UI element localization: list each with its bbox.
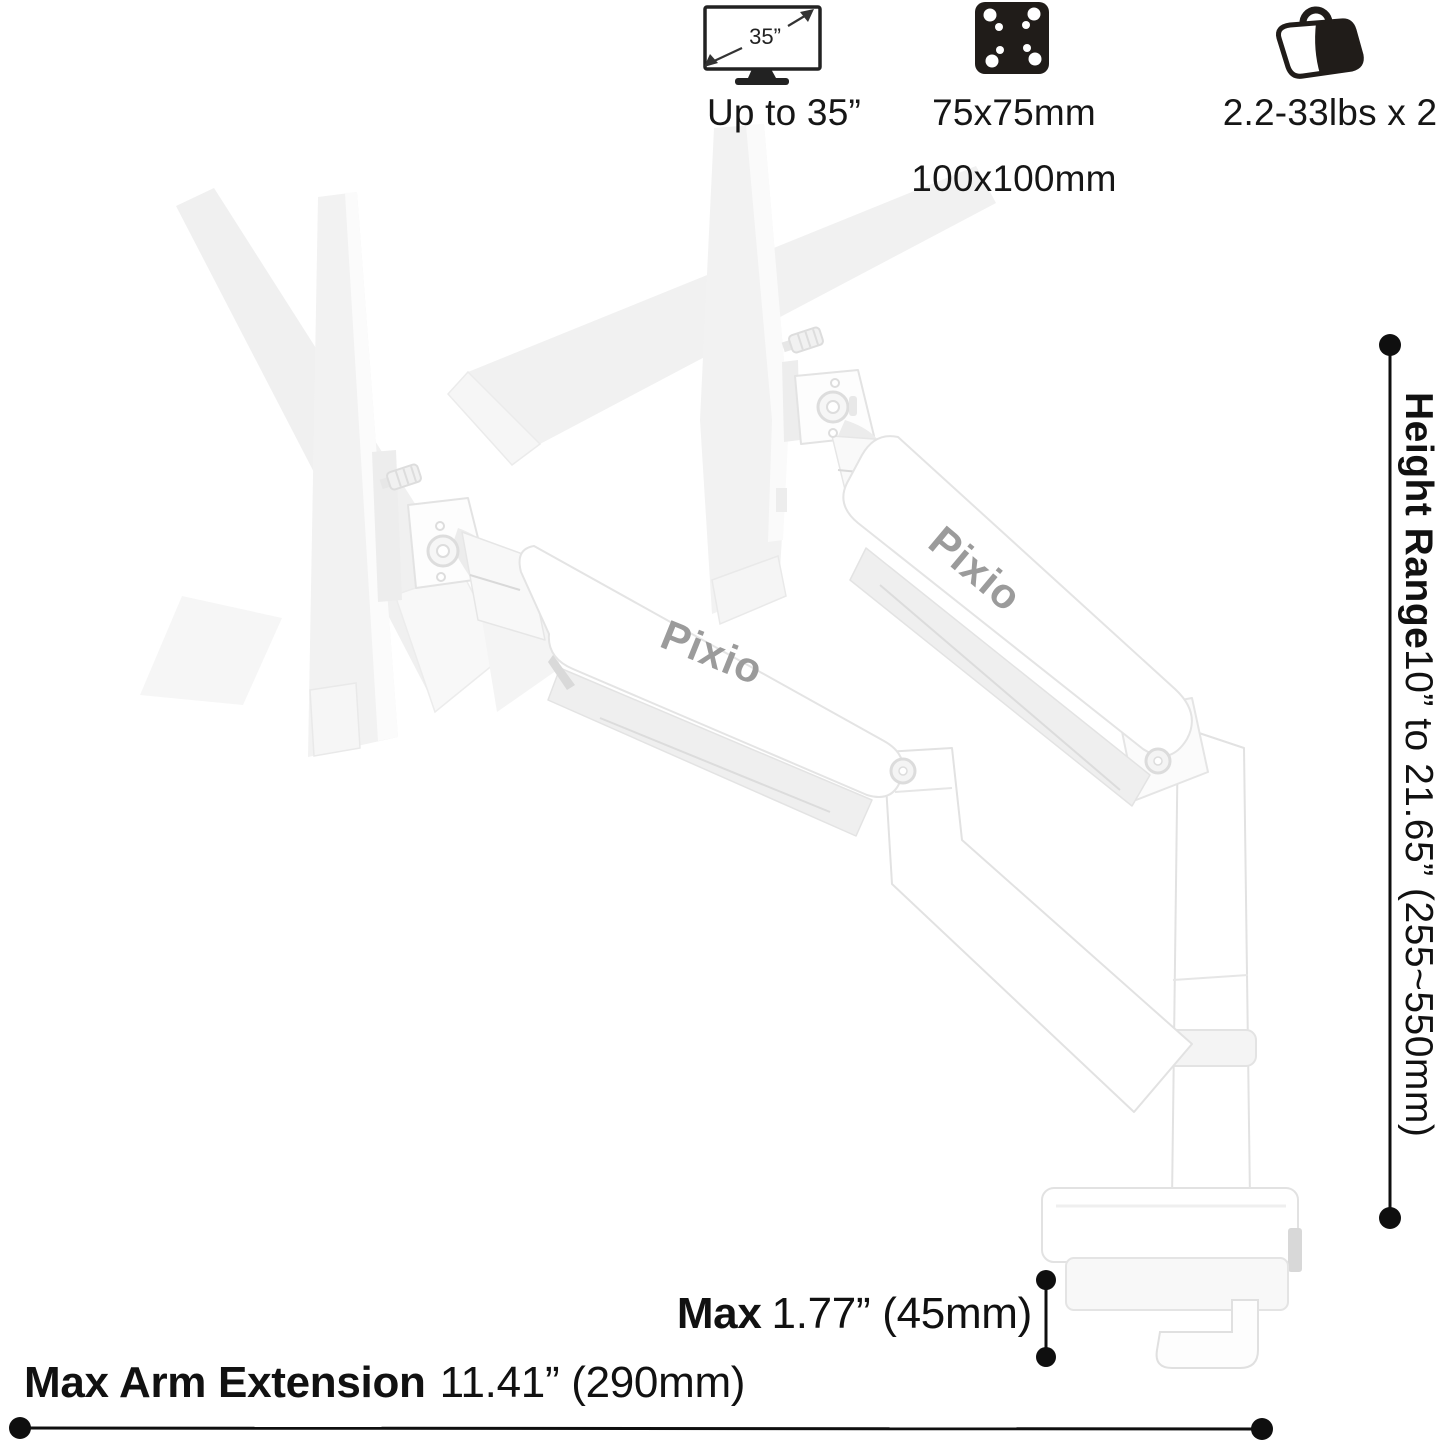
arm-extension-label-name: Max Arm Extension <box>24 1358 426 1407</box>
right-monitor-bracket-tab <box>776 488 787 512</box>
arm-extension-dimension-line <box>20 1428 1262 1429</box>
left-monitor-ghost-wedge <box>140 596 282 705</box>
monitor-stand-base <box>735 78 789 85</box>
right-joint-button-center <box>827 401 839 413</box>
vesa-size-label-2: 100x100mm <box>911 158 1116 200</box>
right-elbow-screw-center <box>1154 757 1162 765</box>
right-joint-dot-bottom <box>829 429 837 437</box>
left-monitor-bottom-cap <box>310 683 360 756</box>
desk-clamp <box>1042 1188 1302 1368</box>
height-range-dot-bottom <box>1379 1207 1401 1229</box>
desk-thickness-label: Max1.77” (45mm) <box>640 1289 1032 1339</box>
product-spec-image: Pixio Pixio <box>0 0 1445 1443</box>
clamp-top-plate <box>1042 1188 1298 1262</box>
left-monitor-ghosts <box>140 188 505 757</box>
left-joint-dot-bottom <box>437 573 445 581</box>
screen-size-label: Up to 35” <box>707 92 861 134</box>
vesa-size-label-1: 75x75mm <box>932 92 1096 134</box>
right-joint-slot <box>849 396 857 416</box>
height-range-label-value: 10” to 21.65” (255~550mm) <box>1397 649 1440 1137</box>
right-thumbscrew <box>780 326 824 355</box>
monitor-arm-left: Pixio <box>372 450 1192 1112</box>
desk-thickness-label-name: Max <box>677 1289 762 1338</box>
left-joint-button-center <box>437 545 449 557</box>
arm-extension-dot-left <box>9 1417 31 1439</box>
screen-size-icon: 35” <box>704 7 820 85</box>
desk-thickness-dot-top <box>1036 1270 1056 1290</box>
left-joint-dot-top <box>436 522 444 530</box>
arm-extension-label: Max Arm Extension11.41” (290mm) <box>24 1358 745 1408</box>
screen-size-icon-label: 35” <box>749 24 781 49</box>
desk-thickness-dot-bottom <box>1036 1347 1056 1367</box>
right-joint-dot-top <box>831 379 839 387</box>
left-arm-lower-segment <box>884 748 1192 1112</box>
desk-thickness-label-value: 1.77” (45mm) <box>772 1289 1032 1338</box>
height-range-label: Height Range10” to 21.65” (255~550mm) <box>1396 392 1440 1138</box>
weight-capacity-icon <box>1278 10 1361 76</box>
left-elbow-screw-center <box>899 767 907 775</box>
height-range-label-name: Height Range <box>1397 392 1440 649</box>
height-range-dot-top <box>1379 334 1401 356</box>
arm-extension-dot-right <box>1251 1418 1273 1440</box>
right-arm-lower-column <box>1172 726 1250 1200</box>
product-render-svg: Pixio Pixio <box>0 0 1445 1443</box>
vesa-pattern-icon <box>975 2 1049 74</box>
weight-capacity-label: 2.2-33lbs x 2 <box>1223 92 1437 134</box>
arm-extension-label-value: 11.41” (290mm) <box>440 1358 746 1407</box>
clamp-cable-clip <box>1288 1228 1302 1272</box>
